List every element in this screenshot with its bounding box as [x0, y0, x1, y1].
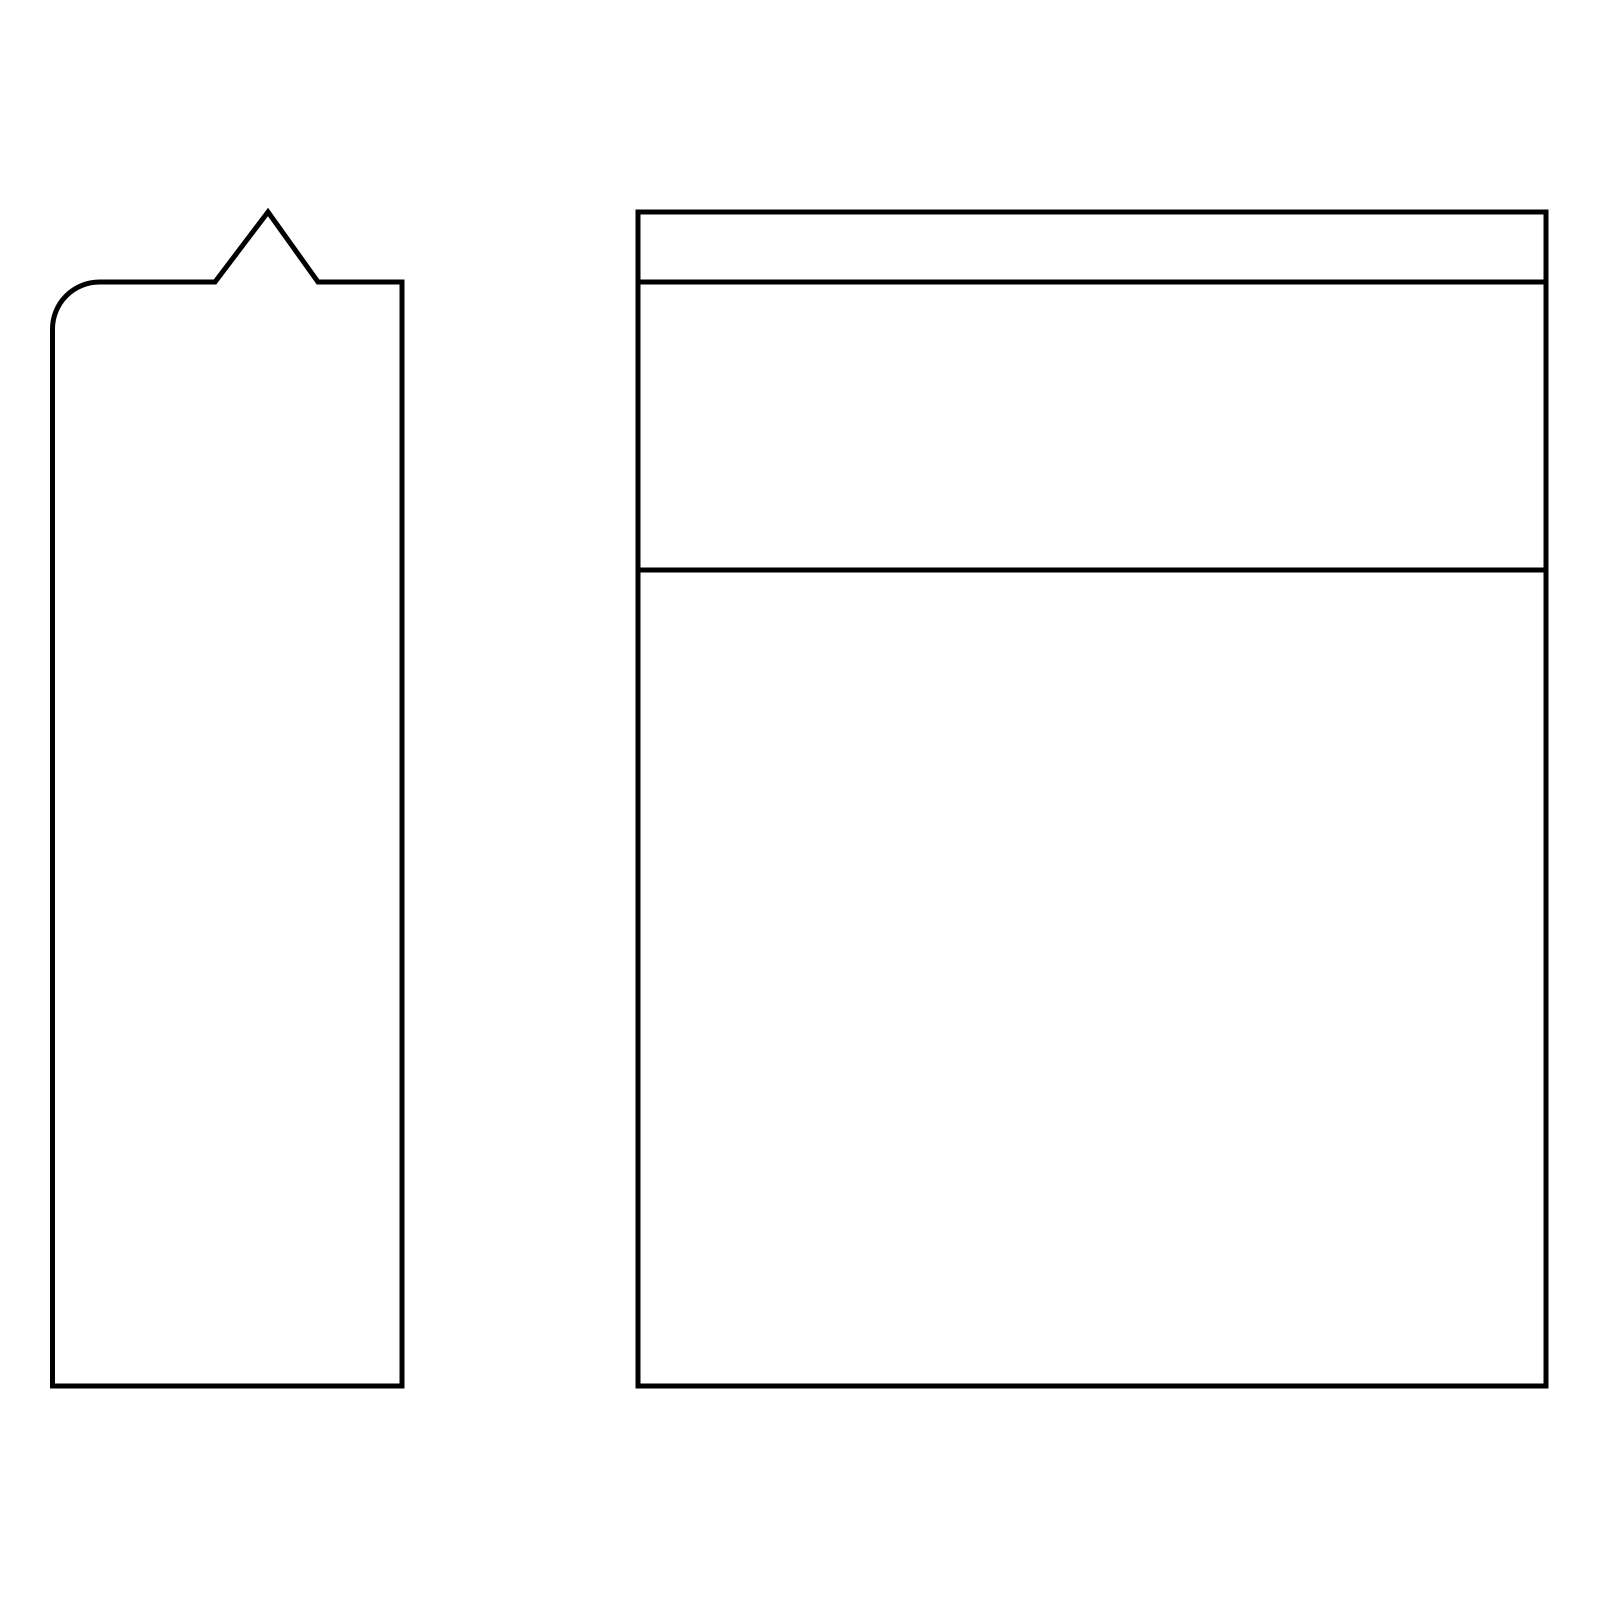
- line-drawing-svg: [0, 0, 1600, 1600]
- divided-rectangle-outline: [638, 212, 1546, 1386]
- notched-tall-panel-outline: [53, 212, 403, 1386]
- diagram-canvas: [0, 0, 1600, 1600]
